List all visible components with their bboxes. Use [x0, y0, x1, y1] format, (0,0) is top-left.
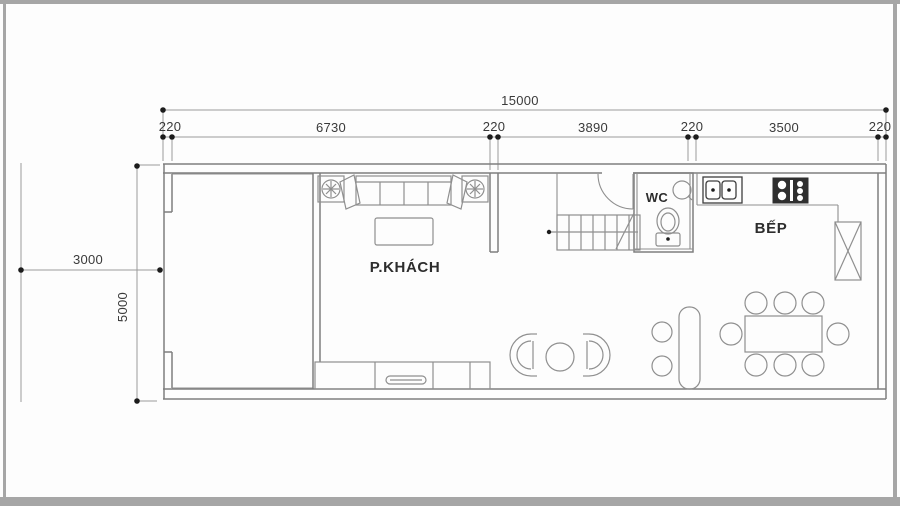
- toilet-icon: [656, 208, 680, 246]
- floor-plan-drawing: 15000 220 6730 220 3890 220 3500 220 300…: [0, 0, 900, 506]
- dining-chair-icon: [720, 323, 742, 345]
- frame-right: [893, 0, 897, 506]
- stove-icon: [773, 178, 808, 203]
- dimension-segment-label-0: 220: [159, 119, 182, 134]
- wc-sink-icon: [673, 181, 692, 200]
- page-frame: [0, 0, 900, 506]
- frame-top: [0, 0, 900, 4]
- dimension-segment-label-3: 3890: [578, 120, 608, 135]
- dining-chair-icon: [802, 292, 824, 314]
- dimension-total-label: 15000: [501, 93, 539, 108]
- dining-chair-icon: [745, 292, 767, 314]
- frame-bottom: [0, 497, 900, 506]
- dimension-segment-label-4: 220: [681, 119, 704, 134]
- armchair-icon: [583, 334, 610, 376]
- dining-chair-icon: [827, 323, 849, 345]
- bar-counter-icon: [679, 307, 700, 389]
- tv-cabinet-icon: [315, 362, 490, 389]
- room-label-living: P.KHÁCH: [370, 259, 441, 276]
- dimension-segment-label-2: 220: [483, 119, 506, 134]
- dimension-segment-label-6: 220: [869, 119, 892, 134]
- room-label-kitchen: BẾP: [755, 220, 788, 237]
- dining-chair-icon: [745, 354, 767, 376]
- door-arc-icon: [598, 174, 633, 209]
- dining-table-icon: [745, 316, 822, 352]
- room-label-wc: WC: [646, 190, 669, 205]
- dining-chair-icon: [802, 354, 824, 376]
- stairs-icon: [547, 213, 640, 250]
- side-table-icon: [546, 343, 574, 371]
- dining-chair-icon: [774, 354, 796, 376]
- dimension-segment-label-5: 3500: [769, 120, 799, 135]
- armchair-icon: [510, 334, 537, 376]
- bar-stool-icon: [652, 322, 672, 342]
- coffee-table-icon: [375, 218, 433, 245]
- bar-stool-icon: [652, 356, 672, 376]
- dimension-segment-label-1: 6730: [316, 120, 346, 135]
- frame-left: [3, 0, 6, 506]
- left-dimension-lines: 3000 5000: [18, 163, 163, 404]
- kitchen-sink-icon: [703, 177, 742, 203]
- fridge-cabinet-icon: [835, 222, 861, 280]
- dining-chair-icon: [774, 292, 796, 314]
- top-dimension-lines: 15000 220 6730 220 3890 220 3500 220: [159, 93, 892, 170]
- dimension-setback-label: 3000: [73, 252, 103, 267]
- kitchen-counter-icon: [697, 173, 838, 222]
- sofa-icon: [340, 175, 467, 209]
- floor-plan-page: 15000 220 6730 220 3890 220 3500 220 300…: [0, 0, 900, 506]
- column-icon: [318, 176, 344, 202]
- dimension-lot-width-label: 5000: [115, 292, 130, 322]
